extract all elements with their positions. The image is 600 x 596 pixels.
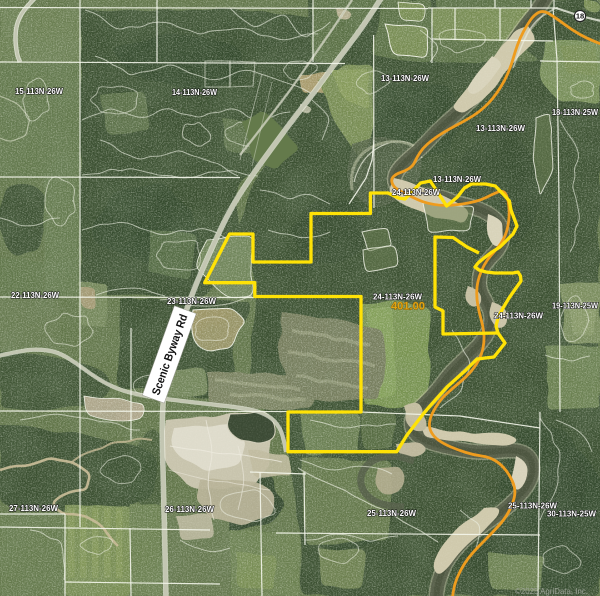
svg-text:19-113N-25W: 19-113N-25W [552, 302, 598, 311]
svg-text:15-113N-26W: 15-113N-26W [15, 87, 63, 96]
svg-text:27-113N-26W: 27-113N-26W [9, 504, 58, 513]
svg-text:24-113N-26W: 24-113N-26W [392, 188, 440, 197]
svg-text:24-113N-26W: 24-113N-26W [494, 312, 543, 321]
svg-text:23-113N-26W: 23-113N-26W [167, 297, 216, 306]
svg-text:18-113N-25W: 18-113N-25W [552, 108, 598, 117]
svg-text:22-113N-26W: 22-113N-26W [11, 291, 59, 300]
svg-text:13-113N-26W: 13-113N-26W [433, 175, 481, 184]
svg-text:401.00: 401.00 [391, 301, 425, 313]
svg-text:13-113N-26W: 13-113N-26W [476, 124, 525, 133]
svg-text:©2025 AgriData, Inc.: ©2025 AgriData, Inc. [515, 586, 588, 596]
svg-text:30-113N-25W: 30-113N-25W [547, 510, 596, 519]
svg-text:13-113N-26W: 13-113N-26W [381, 74, 429, 83]
svg-text:26-113N-26W: 26-113N-26W [165, 505, 214, 514]
svg-text:18: 18 [576, 12, 584, 21]
svg-text:14-113N-26W: 14-113N-26W [172, 88, 217, 97]
svg-text:25-113N-26W: 25-113N-26W [367, 509, 416, 518]
